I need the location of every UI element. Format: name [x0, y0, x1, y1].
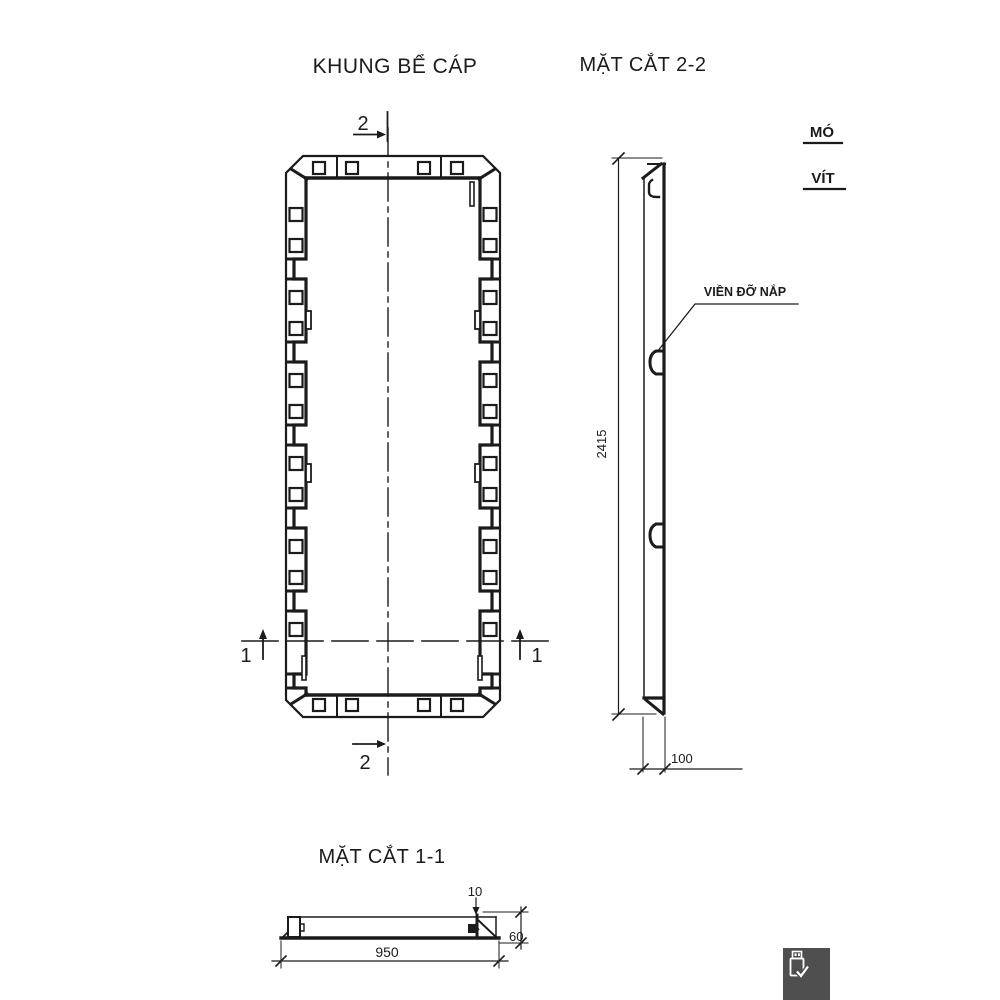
right-wall-castellation: [480, 178, 492, 695]
usb-drive-check-icon: [783, 948, 811, 982]
marker-2-bottom-label: 2: [359, 752, 370, 774]
lid-support-hook-1: [650, 351, 662, 374]
note-line-2: VÍT: [811, 170, 834, 187]
section-2-2-title: MẶT CẮT 2-2: [579, 52, 706, 76]
marker-1-left-label: 1: [240, 645, 251, 667]
lid-support-hook-2: [650, 524, 662, 547]
engineering-drawing: KHUNG BỂ CÁP MẶT CẮT 2-2 2 2 1 1 2415 10…: [0, 0, 1000, 1000]
dimension-2415: [612, 153, 662, 720]
width-dim-label: 950: [375, 944, 399, 960]
marker-1-right-label: 1: [531, 645, 542, 667]
plan-view: [242, 112, 552, 775]
plan-title: KHUNG BỂ CÁP: [313, 55, 478, 78]
usb-export-button[interactable]: [783, 948, 830, 1000]
section-marker-1-left: [259, 629, 267, 659]
note-line-1: MÓ: [810, 123, 834, 141]
lid-support-callout: VIỀN ĐỠ NẮP: [704, 284, 786, 299]
depth-dim-label: 100: [671, 751, 693, 766]
section-marker-1-right: [516, 629, 524, 659]
top-hook: [649, 180, 659, 197]
section-2-2-view: [612, 143, 845, 774]
section-1-1-view: [272, 898, 528, 968]
callout-leader: [657, 304, 798, 352]
wall-holes-and-tabs: [288, 162, 498, 711]
section-1-1-title: MẶT CẮT 1-1: [318, 844, 445, 868]
marker-2-top-label: 2: [357, 113, 368, 135]
frame-outer-boundary: [286, 156, 500, 717]
drawing-page: KHUNG BỂ CÁP MẶT CẮT 2-2 2 2 1 1 2415 10…: [0, 0, 1000, 1000]
left-wall-castellation: [294, 178, 306, 695]
plate-dim-label: 10: [468, 884, 482, 899]
end-height-dim-label: 60: [509, 929, 523, 944]
height-dim-label: 2415: [594, 430, 609, 459]
section-marker-2-bottom: [353, 740, 386, 748]
